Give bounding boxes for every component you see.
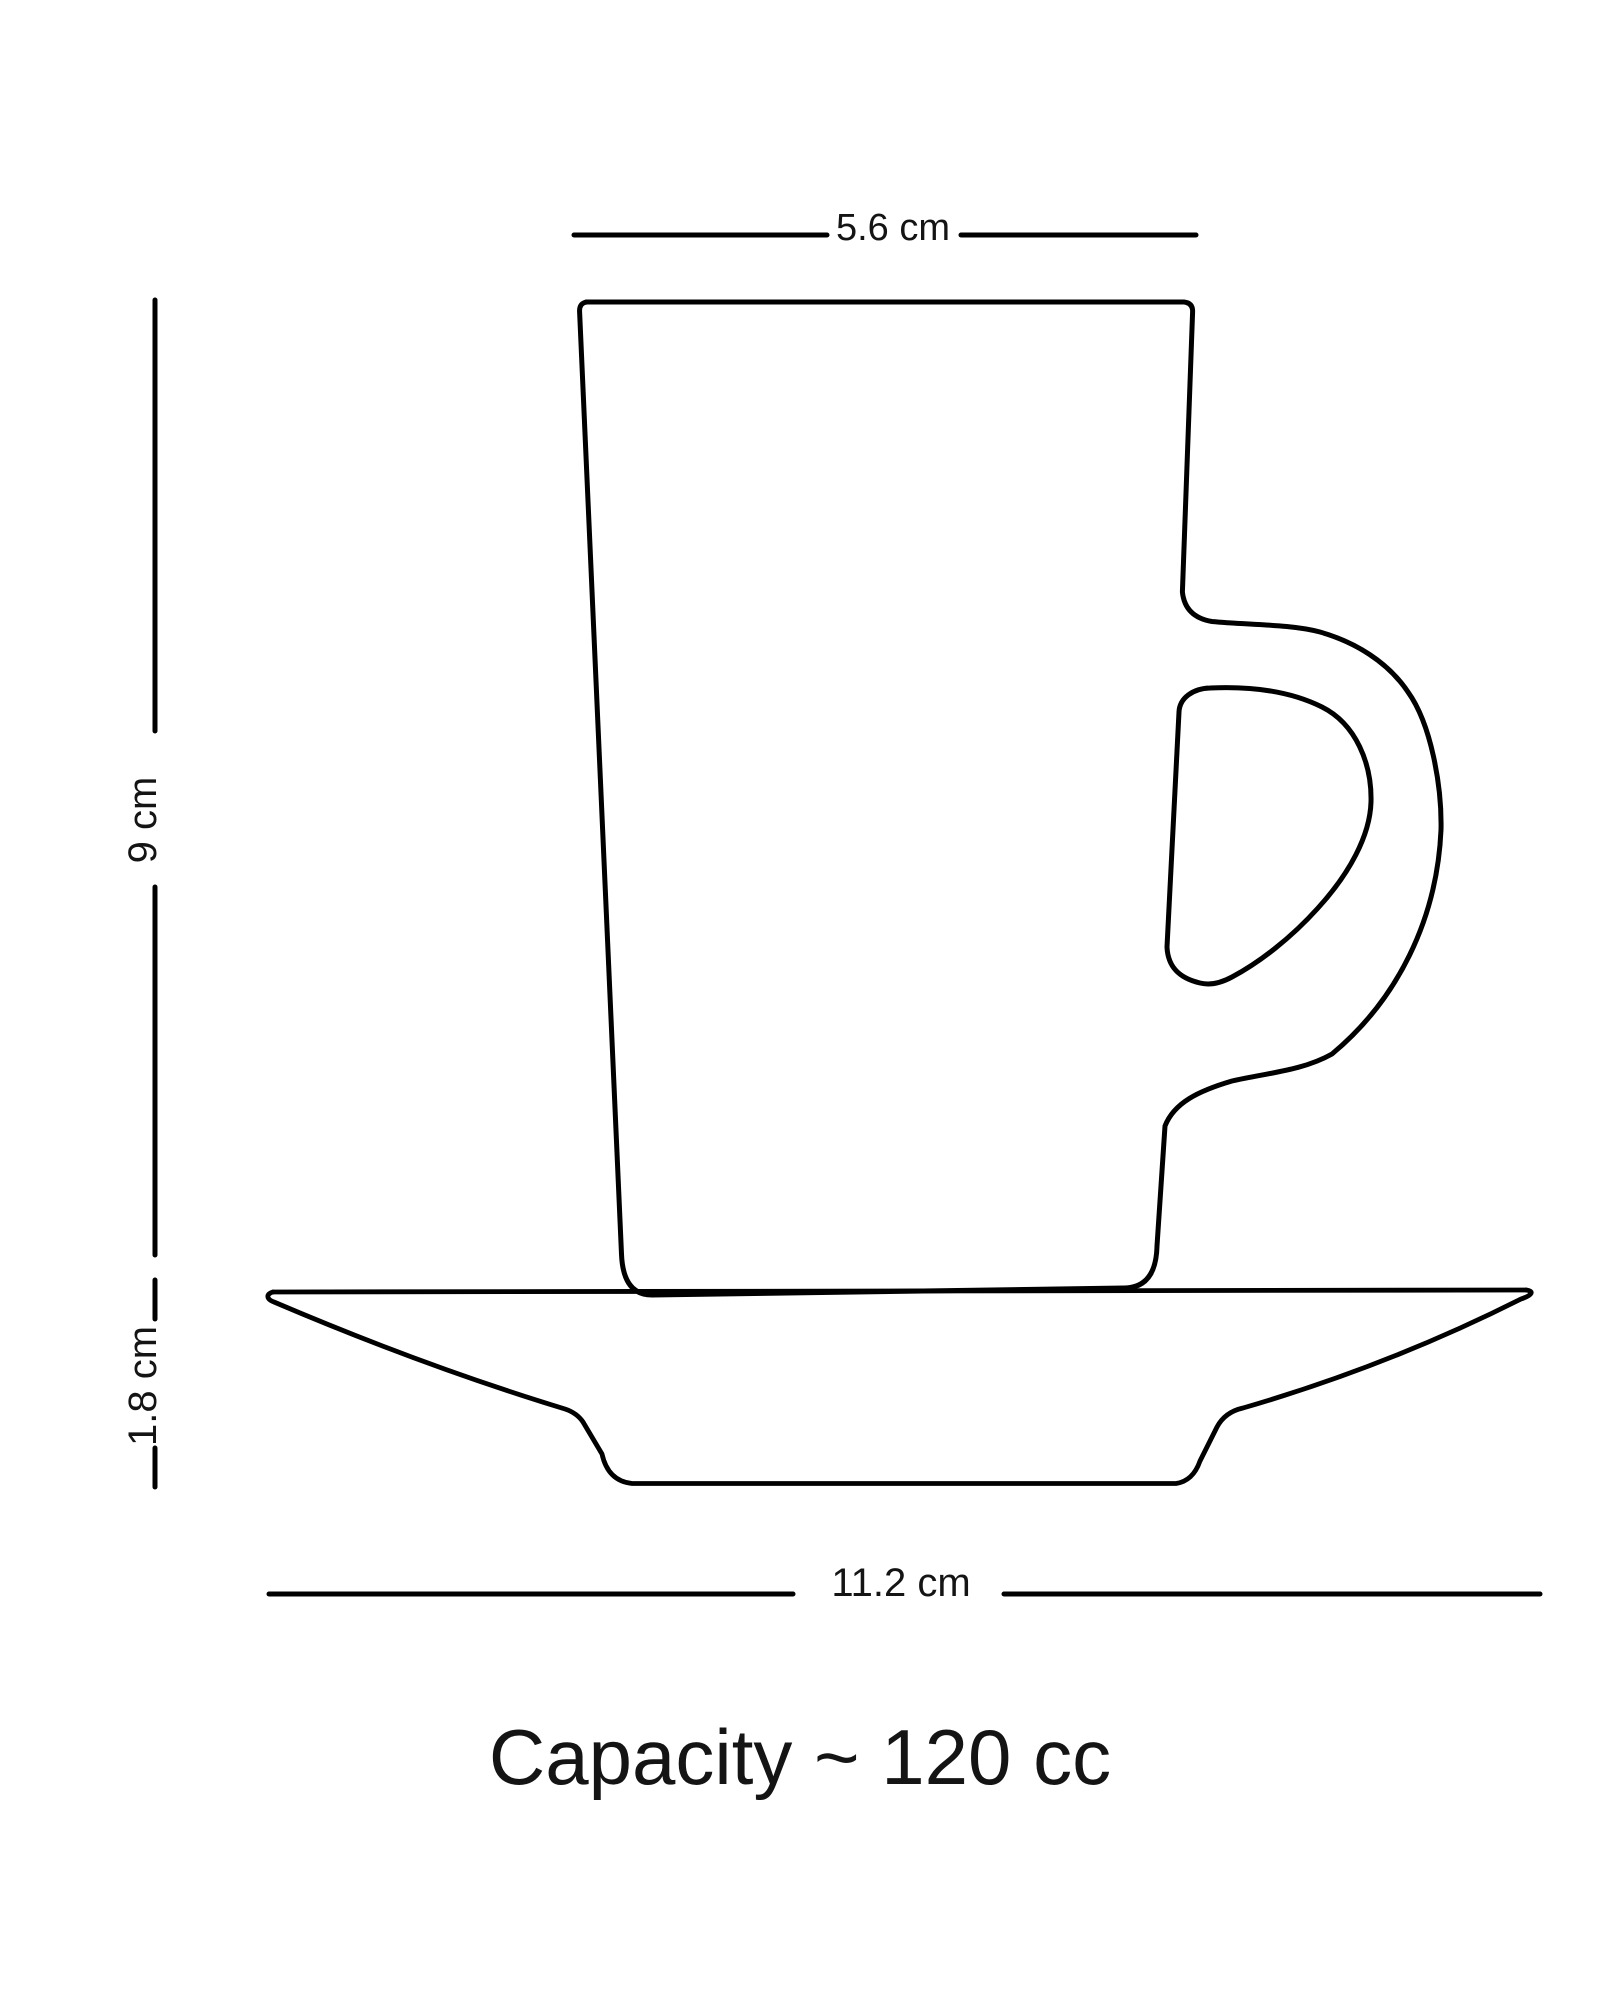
svg-text:1.8 cm: 1.8 cm [121,1326,165,1446]
svg-text:9 cm: 9 cm [121,777,165,864]
svg-text:Capacity ~ 120 cc: Capacity ~ 120 cc [489,1713,1111,1801]
svg-text:11.2 cm: 11.2 cm [831,1561,970,1605]
svg-text:5.6 cm: 5.6 cm [836,207,950,249]
